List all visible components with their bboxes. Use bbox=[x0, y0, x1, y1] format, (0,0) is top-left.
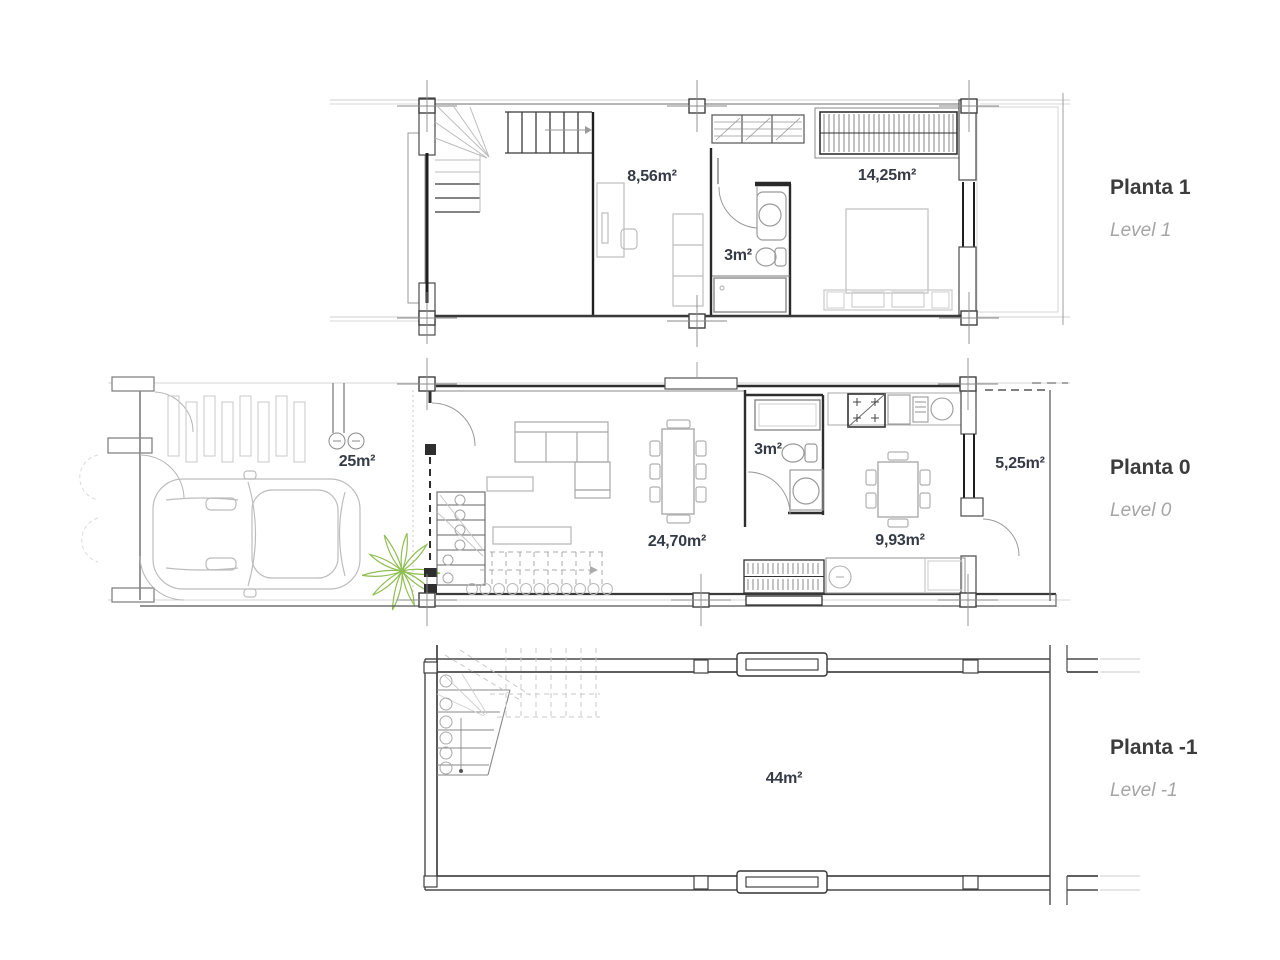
bathroom-level1 bbox=[711, 148, 791, 317]
stairs-level0 bbox=[437, 492, 613, 595]
utility-meters bbox=[329, 383, 364, 449]
radiator bbox=[744, 560, 824, 605]
level-subtitle-level-1: Level 1 bbox=[1110, 220, 1171, 242]
kitchen-table bbox=[866, 452, 930, 527]
plot-boundary-left bbox=[80, 377, 193, 602]
couch bbox=[673, 214, 703, 306]
closet-wardrobe bbox=[815, 108, 962, 158]
stairs-direction-arrow bbox=[545, 126, 592, 134]
plan-level-1 bbox=[330, 80, 1070, 347]
floor-plan-sheet: 8,56m² 3m² 14,25m² 25m² 24,70m² 3m² 9,93… bbox=[0, 0, 1280, 960]
dining-table bbox=[650, 420, 706, 523]
area-label-studio: 8,56m² bbox=[627, 168, 677, 186]
wall-right-level0 bbox=[961, 390, 1019, 598]
area-label-terrace: 5,25m² bbox=[995, 455, 1045, 473]
level-subtitle-level-0: Level 0 bbox=[1110, 500, 1171, 522]
stairs-projection bbox=[480, 552, 604, 586]
desk bbox=[597, 183, 637, 257]
plan-level-0 bbox=[80, 358, 1070, 626]
area-label-living: 24,70m² bbox=[648, 533, 706, 551]
bed bbox=[824, 209, 952, 310]
level-title-planta-minus1: Planta -1 bbox=[1110, 736, 1198, 760]
terrace bbox=[985, 390, 1056, 607]
area-label-garage: 25m² bbox=[339, 453, 376, 471]
stair-step-markers bbox=[443, 495, 465, 583]
level-title-planta-1: Planta 1 bbox=[1110, 176, 1191, 200]
sofa bbox=[515, 422, 610, 498]
kitchen bbox=[828, 393, 965, 527]
plan-linework bbox=[0, 0, 1280, 960]
tv-bench bbox=[493, 527, 571, 544]
stairs-level-minus1 bbox=[437, 648, 600, 775]
level-title-planta-0: Planta 0 bbox=[1110, 456, 1191, 480]
pergola-slats bbox=[168, 396, 305, 462]
closet-louvered bbox=[712, 115, 804, 143]
wall-right-level1 bbox=[959, 100, 976, 315]
level-subtitle-level-minus1: Level -1 bbox=[1110, 780, 1178, 802]
area-label-bedroom: 14,25m² bbox=[858, 167, 916, 185]
bottom-counter bbox=[826, 558, 965, 593]
basement-window-top bbox=[737, 653, 827, 676]
area-label-basement: 44m² bbox=[766, 770, 803, 788]
basement-window-bottom bbox=[737, 871, 827, 893]
area-label-kitchen: 9,93m² bbox=[875, 532, 925, 550]
stair-step-markers-row bbox=[467, 584, 613, 595]
area-label-bath-l0: 3m² bbox=[754, 441, 782, 459]
area-label-bath-l1: 3m² bbox=[724, 247, 752, 265]
coffee-table bbox=[487, 477, 533, 491]
kitchen-sink bbox=[913, 397, 953, 422]
car bbox=[153, 471, 360, 597]
stairs-level1-winders bbox=[435, 107, 489, 212]
